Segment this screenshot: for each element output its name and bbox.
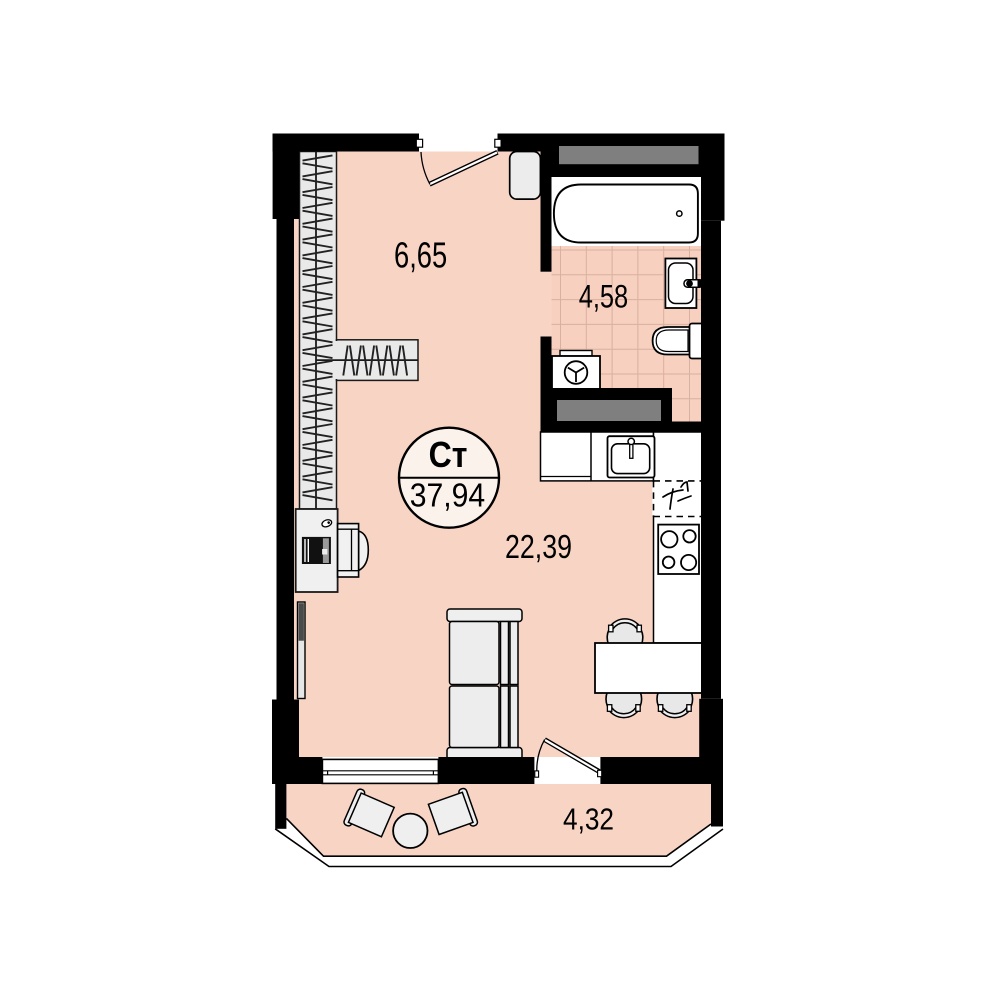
svg-text:37,94: 37,94 xyxy=(410,477,486,514)
svg-text:Ст: Ст xyxy=(429,435,468,475)
svg-text:4,32: 4,32 xyxy=(563,802,614,837)
svg-text:22,39: 22,39 xyxy=(505,528,572,565)
svg-text:6,65: 6,65 xyxy=(394,234,447,275)
svg-text:4,58: 4,58 xyxy=(579,279,629,315)
